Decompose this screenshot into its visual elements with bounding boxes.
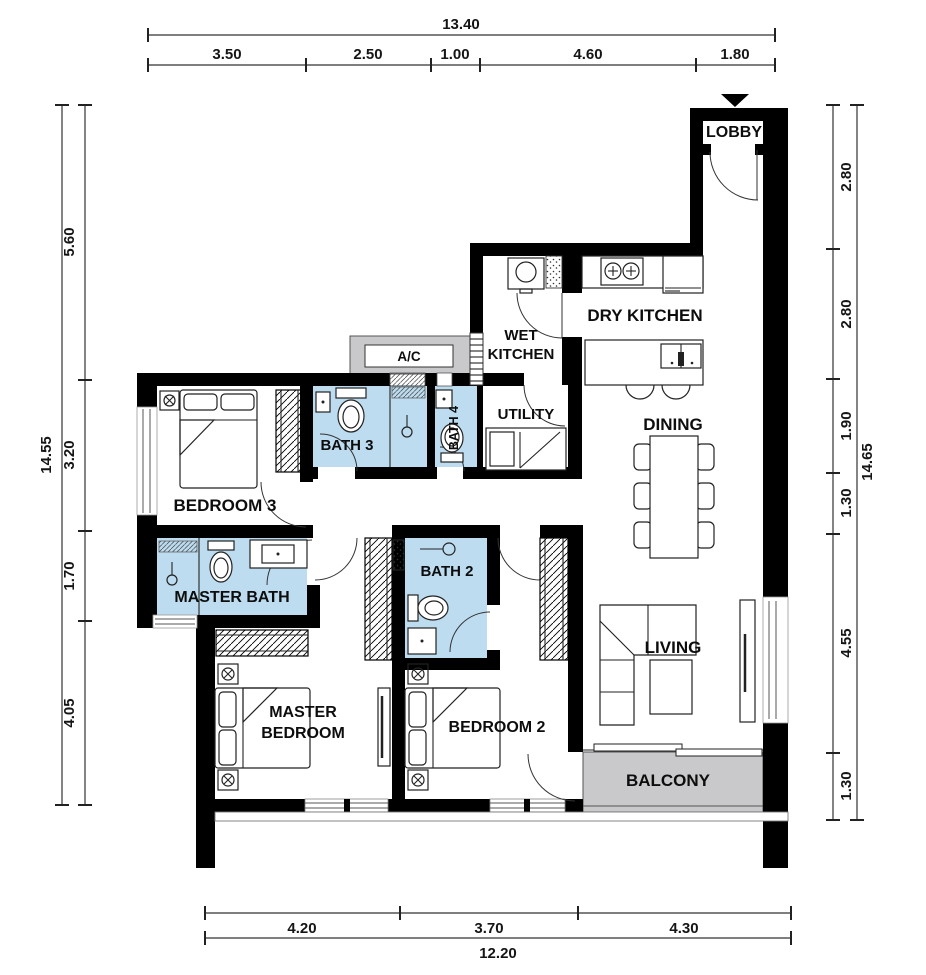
dim-right-total: 14.65 <box>859 443 876 481</box>
label-lobby: LOBBY <box>706 124 762 141</box>
entrance-arrow-icon <box>721 94 749 107</box>
dining-chair-icon <box>634 522 652 548</box>
label-master-bedroom-2: BEDROOM <box>261 725 345 742</box>
dim-right-seg-1: 2.80 <box>838 162 855 191</box>
dim-top-seg-4: 4.60 <box>573 46 602 63</box>
dim-bottom-seg-1: 4.20 <box>287 920 316 937</box>
dim-right-seg-3: 1.90 <box>838 411 855 440</box>
label-living: LIVING <box>645 638 702 657</box>
bedroom3-wardrobe <box>276 390 303 472</box>
bedroom2-window <box>490 799 565 812</box>
bedroom2-entry-door <box>498 538 540 580</box>
label-utility: UTILITY <box>498 406 555 423</box>
bedroom3-window <box>137 407 157 515</box>
vent-strip <box>546 256 562 288</box>
wet-kitchen-fixtures <box>508 256 562 293</box>
dim-right-seg-2: 2.80 <box>838 299 855 328</box>
island-counter <box>585 340 703 385</box>
dim-right-seg-4: 1.30 <box>838 488 855 517</box>
master-bedroom-window <box>305 799 388 812</box>
dim-right-seg-5: 4.55 <box>838 628 855 657</box>
floor-plan-page: 13.40 3.50 2.50 1.00 4.60 1.80 14.55 5.6… <box>0 0 926 970</box>
utility-rack-icon <box>486 428 566 470</box>
kitchen-sink-icon <box>508 258 544 293</box>
dimension-right: 2.80 2.80 1.90 1.30 4.55 1.30 14.65 <box>826 105 876 820</box>
dim-left-seg-2: 3.20 <box>61 440 78 469</box>
bedroom3-fixtures <box>160 390 257 488</box>
master-vestibule-wardrobe <box>365 538 392 660</box>
dim-top-total: 13.40 <box>442 16 480 33</box>
dining-chair-icon <box>696 444 714 470</box>
dim-left-seg-3: 1.70 <box>61 561 78 590</box>
bedroom2-wardrobe <box>540 538 568 660</box>
nightstand-icon <box>218 770 238 790</box>
dim-right-seg-6: 1.30 <box>838 771 855 800</box>
dim-top-seg-5: 1.80 <box>720 46 749 63</box>
fridge-icon <box>663 256 703 293</box>
basin-icon <box>316 392 330 412</box>
planter-icon <box>160 391 179 410</box>
label-bedroom3: BEDROOM 3 <box>174 496 277 515</box>
nightstand-icon <box>408 770 428 790</box>
dim-bottom-seg-2: 3.70 <box>474 920 503 937</box>
entrance-door <box>710 150 758 200</box>
label-balcony: BALCONY <box>626 771 711 790</box>
label-bedroom2: BEDROOM 2 <box>449 719 546 736</box>
basin-icon <box>436 390 452 408</box>
bath4-vent <box>437 373 452 386</box>
master-bath-window <box>153 615 197 628</box>
label-master-bath: MASTER BATH <box>174 589 289 606</box>
dim-left-seg-4: 4.05 <box>61 698 78 727</box>
dim-left-total: 14.55 <box>38 436 55 474</box>
dimension-left: 14.55 5.60 3.20 1.70 4.05 <box>38 105 92 805</box>
bar-stool-icon <box>626 385 654 399</box>
living-window <box>763 597 788 723</box>
label-bath4: BATH 4 <box>447 406 461 450</box>
dry-kitchen-fixtures <box>582 256 703 399</box>
dining-table-icon <box>650 436 698 558</box>
dim-top-seg-3: 1.00 <box>440 46 469 63</box>
master-suite-door <box>315 538 357 580</box>
label-ac: A/C <box>397 349 421 364</box>
toilet-icon <box>208 541 234 582</box>
label-master-bedroom-1: MASTER <box>269 704 337 721</box>
window-sill-band <box>215 812 788 821</box>
label-wet-kitchen-1: WET <box>504 327 537 344</box>
bath3-vent <box>390 373 425 386</box>
label-bath3: BATH 3 <box>320 437 373 454</box>
dim-bottom-seg-3: 4.30 <box>669 920 698 937</box>
bed-icon <box>180 390 257 488</box>
dining-chair-icon <box>696 483 714 509</box>
shower-mat <box>159 541 197 552</box>
coffee-table-icon <box>650 660 692 714</box>
label-bath2: BATH 2 <box>420 563 473 580</box>
bar-stool-icon <box>662 385 690 399</box>
dim-bottom-total: 12.20 <box>479 945 517 962</box>
dim-top-seg-1: 3.50 <box>212 46 241 63</box>
utility-fixtures <box>486 428 566 470</box>
vanity-icon <box>250 540 307 568</box>
toilet-icon <box>408 595 448 621</box>
dim-left-seg-1: 5.60 <box>61 227 78 256</box>
shower-mat <box>392 387 425 398</box>
basin-icon <box>408 628 436 654</box>
dim-top-seg-2: 2.50 <box>353 46 382 63</box>
toilet-icon <box>336 388 366 432</box>
tv-console-icon <box>740 600 755 722</box>
living-fixtures <box>583 600 763 756</box>
label-wet-kitchen-2: KITCHEN <box>488 346 555 363</box>
dining-chair-icon <box>634 444 652 470</box>
dimension-bottom: 4.20 3.70 4.30 12.20 <box>205 906 791 962</box>
label-dry-kitchen: DRY KITCHEN <box>587 306 702 325</box>
dining-fixtures <box>634 436 714 558</box>
master-bedroom-wardrobe <box>216 630 308 656</box>
label-dining: DINING <box>643 415 703 434</box>
vent-strip <box>393 540 404 570</box>
dimension-top: 13.40 3.50 2.50 1.00 4.60 1.80 <box>148 16 775 72</box>
floor-plan-drawing: 13.40 3.50 2.50 1.00 4.60 1.80 14.55 5.6… <box>0 0 926 970</box>
ac-louvre <box>470 333 483 385</box>
bedroom2-balcony-side-door <box>528 754 575 801</box>
dining-chair-icon <box>696 522 714 548</box>
nightstand-icon <box>218 664 238 684</box>
tv-console-icon <box>378 688 390 766</box>
dining-chair-icon <box>634 483 652 509</box>
